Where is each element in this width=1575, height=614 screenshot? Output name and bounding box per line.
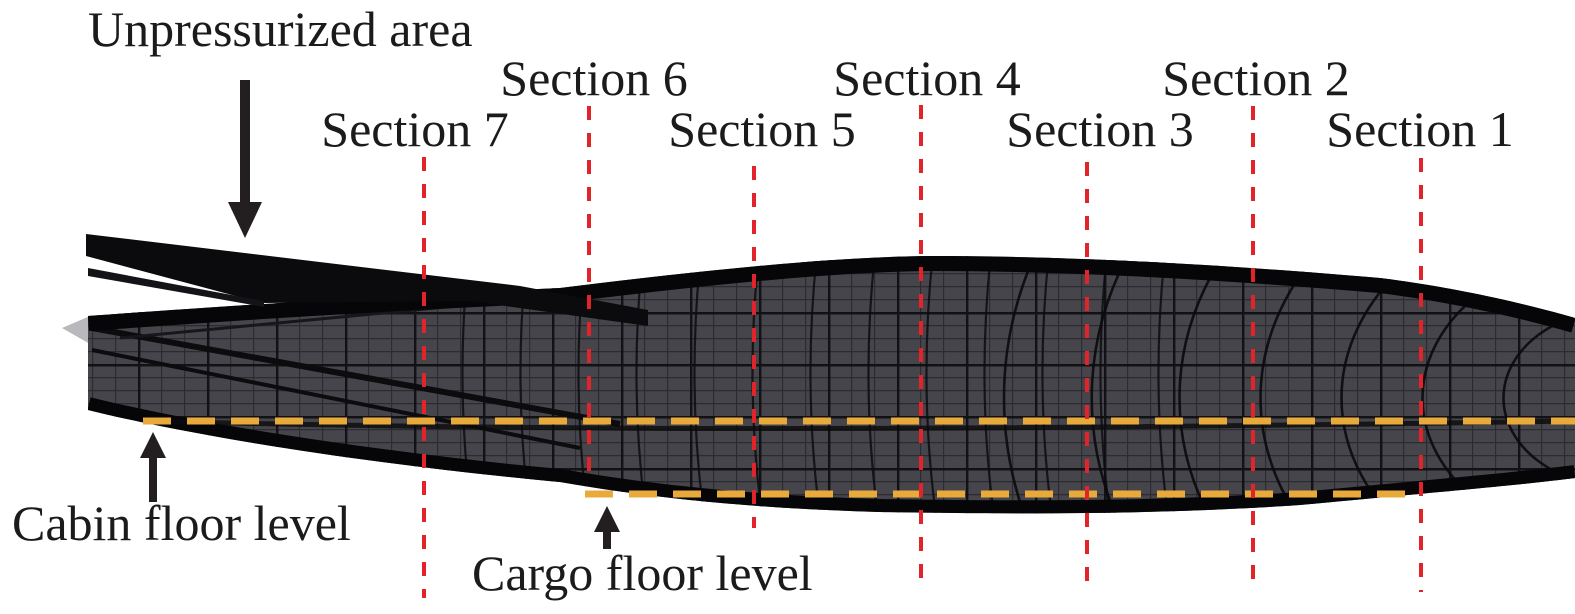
section-label: Section 1 <box>1326 103 1513 155</box>
figure-canvas: Unpressurized area Section 1Section 2Sec… <box>0 0 1575 614</box>
cargo-floor-label: Cargo floor level <box>472 547 813 599</box>
section-label: Section 5 <box>668 103 855 155</box>
unpressurized-area-arrow-head <box>228 202 262 238</box>
unpressurized-area-label: Unpressurized area <box>88 3 473 55</box>
cabin-floor-arrow-head <box>140 432 166 458</box>
section-label: Section 4 <box>833 52 1020 104</box>
section-label: Section 6 <box>500 52 687 104</box>
cabin-floor-label: Cabin floor level <box>12 497 351 549</box>
section-label: Section 7 <box>321 103 508 155</box>
cargo-floor-arrow-head <box>594 506 620 532</box>
far-tailplane-tip <box>62 316 90 344</box>
section-label: Section 2 <box>1162 52 1349 104</box>
section-label: Section 3 <box>1006 103 1193 155</box>
